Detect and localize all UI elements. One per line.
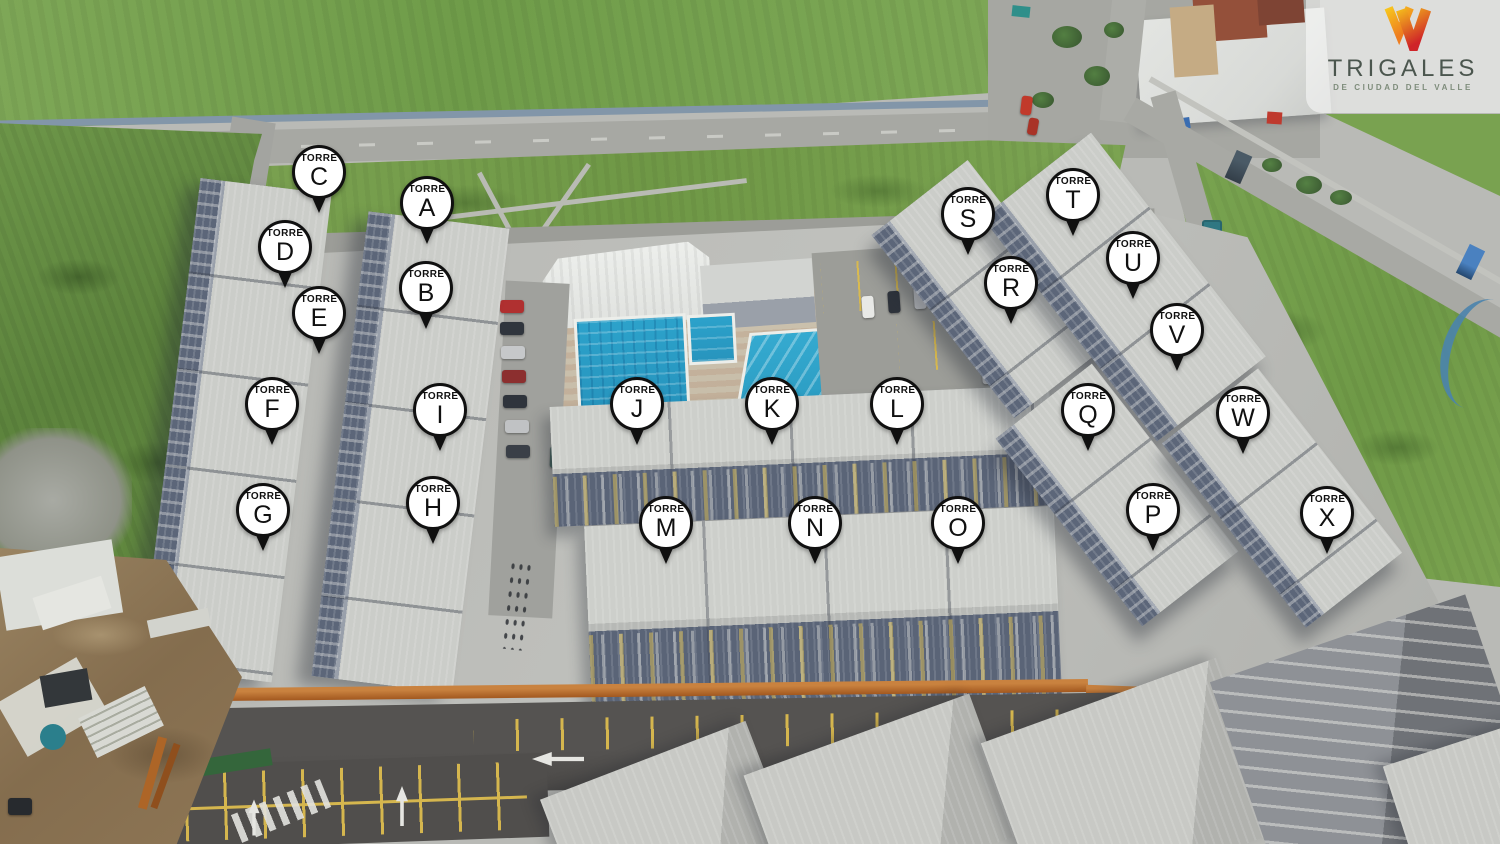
pin-head: TORRE M xyxy=(639,496,693,550)
pin-head: TORRE U xyxy=(1106,231,1160,285)
pin-tower-letter: O xyxy=(948,516,967,541)
aerial-site-map: TORRE A TORRE B TORRE C TORRE D TORRE E … xyxy=(0,0,1500,844)
pin-head: TORRE Q xyxy=(1061,383,1115,437)
map-pin-torre-m[interactable]: TORRE M xyxy=(639,496,693,572)
pin-head: TORRE J xyxy=(610,377,664,431)
pin-tower-letter: F xyxy=(264,397,279,422)
pin-tower-letter: W xyxy=(1231,406,1255,431)
pin-head: TORRE X xyxy=(1300,486,1354,540)
map-pin-torre-r[interactable]: TORRE R xyxy=(984,256,1038,332)
map-pin-torre-s[interactable]: TORRE S xyxy=(941,187,995,263)
map-pin-torre-a[interactable]: TORRE A xyxy=(400,176,454,252)
pin-head: TORRE P xyxy=(1126,483,1180,537)
pin-tower-letter: D xyxy=(276,240,294,265)
pin-tower-letter: Q xyxy=(1078,403,1097,428)
pin-tower-letter: K xyxy=(764,397,781,422)
map-pin-torre-w[interactable]: TORRE W xyxy=(1216,386,1270,462)
map-pin-torre-h[interactable]: TORRE H xyxy=(406,476,460,552)
pin-tower-letter: L xyxy=(890,397,904,422)
map-pin-torre-c[interactable]: TORRE C xyxy=(292,145,346,221)
map-pin-torre-v[interactable]: TORRE V xyxy=(1150,303,1204,379)
map-pin-torre-j[interactable]: TORRE J xyxy=(610,377,664,453)
pin-head: TORRE B xyxy=(399,261,453,315)
pin-head: TORRE E xyxy=(292,286,346,340)
map-pin-torre-u[interactable]: TORRE U xyxy=(1106,231,1160,307)
pin-head: TORRE R xyxy=(984,256,1038,310)
pin-tower-letter: X xyxy=(1319,506,1336,531)
brand-logo-panel: TRIGALES DE CIUDAD DEL VALLE xyxy=(1306,0,1500,113)
pin-head: TORRE F xyxy=(245,377,299,431)
pin-head: TORRE A xyxy=(400,176,454,230)
pin-head: TORRE N xyxy=(788,496,842,550)
pin-head: TORRE T xyxy=(1046,168,1100,222)
pin-head: TORRE V xyxy=(1150,303,1204,357)
trigales-logo-mark-icon xyxy=(1374,3,1432,56)
map-pin-torre-d[interactable]: TORRE D xyxy=(258,220,312,296)
map-pin-torre-t[interactable]: TORRE T xyxy=(1046,168,1100,244)
map-pin-torre-x[interactable]: TORRE X xyxy=(1300,486,1354,562)
map-pin-torre-p[interactable]: TORRE P xyxy=(1126,483,1180,559)
brand-tagline: DE CIUDAD DEL VALLE xyxy=(1333,83,1473,92)
map-pin-torre-n[interactable]: TORRE N xyxy=(788,496,842,572)
pin-head: TORRE D xyxy=(258,220,312,274)
pin-head: TORRE H xyxy=(406,476,460,530)
pin-tower-letter: B xyxy=(418,281,435,306)
pin-head: TORRE S xyxy=(941,187,995,241)
marker-layer: TORRE A TORRE B TORRE C TORRE D TORRE E … xyxy=(0,0,1500,844)
pin-tower-letter: T xyxy=(1065,188,1080,213)
map-pin-torre-e[interactable]: TORRE E xyxy=(292,286,346,362)
pin-tower-letter: C xyxy=(310,165,328,190)
map-pin-torre-f[interactable]: TORRE F xyxy=(245,377,299,453)
pin-tower-letter: I xyxy=(437,403,444,428)
pin-head: TORRE C xyxy=(292,145,346,199)
pin-head: TORRE L xyxy=(870,377,924,431)
pin-tower-letter: A xyxy=(419,196,436,221)
map-pin-torre-l[interactable]: TORRE L xyxy=(870,377,924,453)
map-pin-torre-i[interactable]: TORRE I xyxy=(413,383,467,459)
pin-tower-letter: J xyxy=(631,397,644,422)
map-pin-torre-o[interactable]: TORRE O xyxy=(931,496,985,572)
map-pin-torre-g[interactable]: TORRE G xyxy=(236,483,290,559)
pin-tower-letter: E xyxy=(311,306,328,331)
pin-tower-letter: V xyxy=(1169,323,1186,348)
pin-head: TORRE O xyxy=(931,496,985,550)
pin-tower-letter: S xyxy=(960,207,977,232)
pin-tower-letter: G xyxy=(253,503,272,528)
pin-tower-letter: M xyxy=(656,516,677,541)
pin-tower-letter: H xyxy=(424,496,442,521)
pin-tower-letter: R xyxy=(1002,276,1020,301)
pin-head: TORRE W xyxy=(1216,386,1270,440)
map-pin-torre-b[interactable]: TORRE B xyxy=(399,261,453,337)
pin-tower-letter: U xyxy=(1124,251,1142,276)
brand-name: TRIGALES xyxy=(1328,56,1479,81)
pin-tower-letter: N xyxy=(806,516,824,541)
pin-tower-letter: P xyxy=(1145,503,1162,528)
map-pin-torre-q[interactable]: TORRE Q xyxy=(1061,383,1115,459)
pin-head: TORRE G xyxy=(236,483,290,537)
pin-head: TORRE I xyxy=(413,383,467,437)
map-pin-torre-k[interactable]: TORRE K xyxy=(745,377,799,453)
pin-head: TORRE K xyxy=(745,377,799,431)
